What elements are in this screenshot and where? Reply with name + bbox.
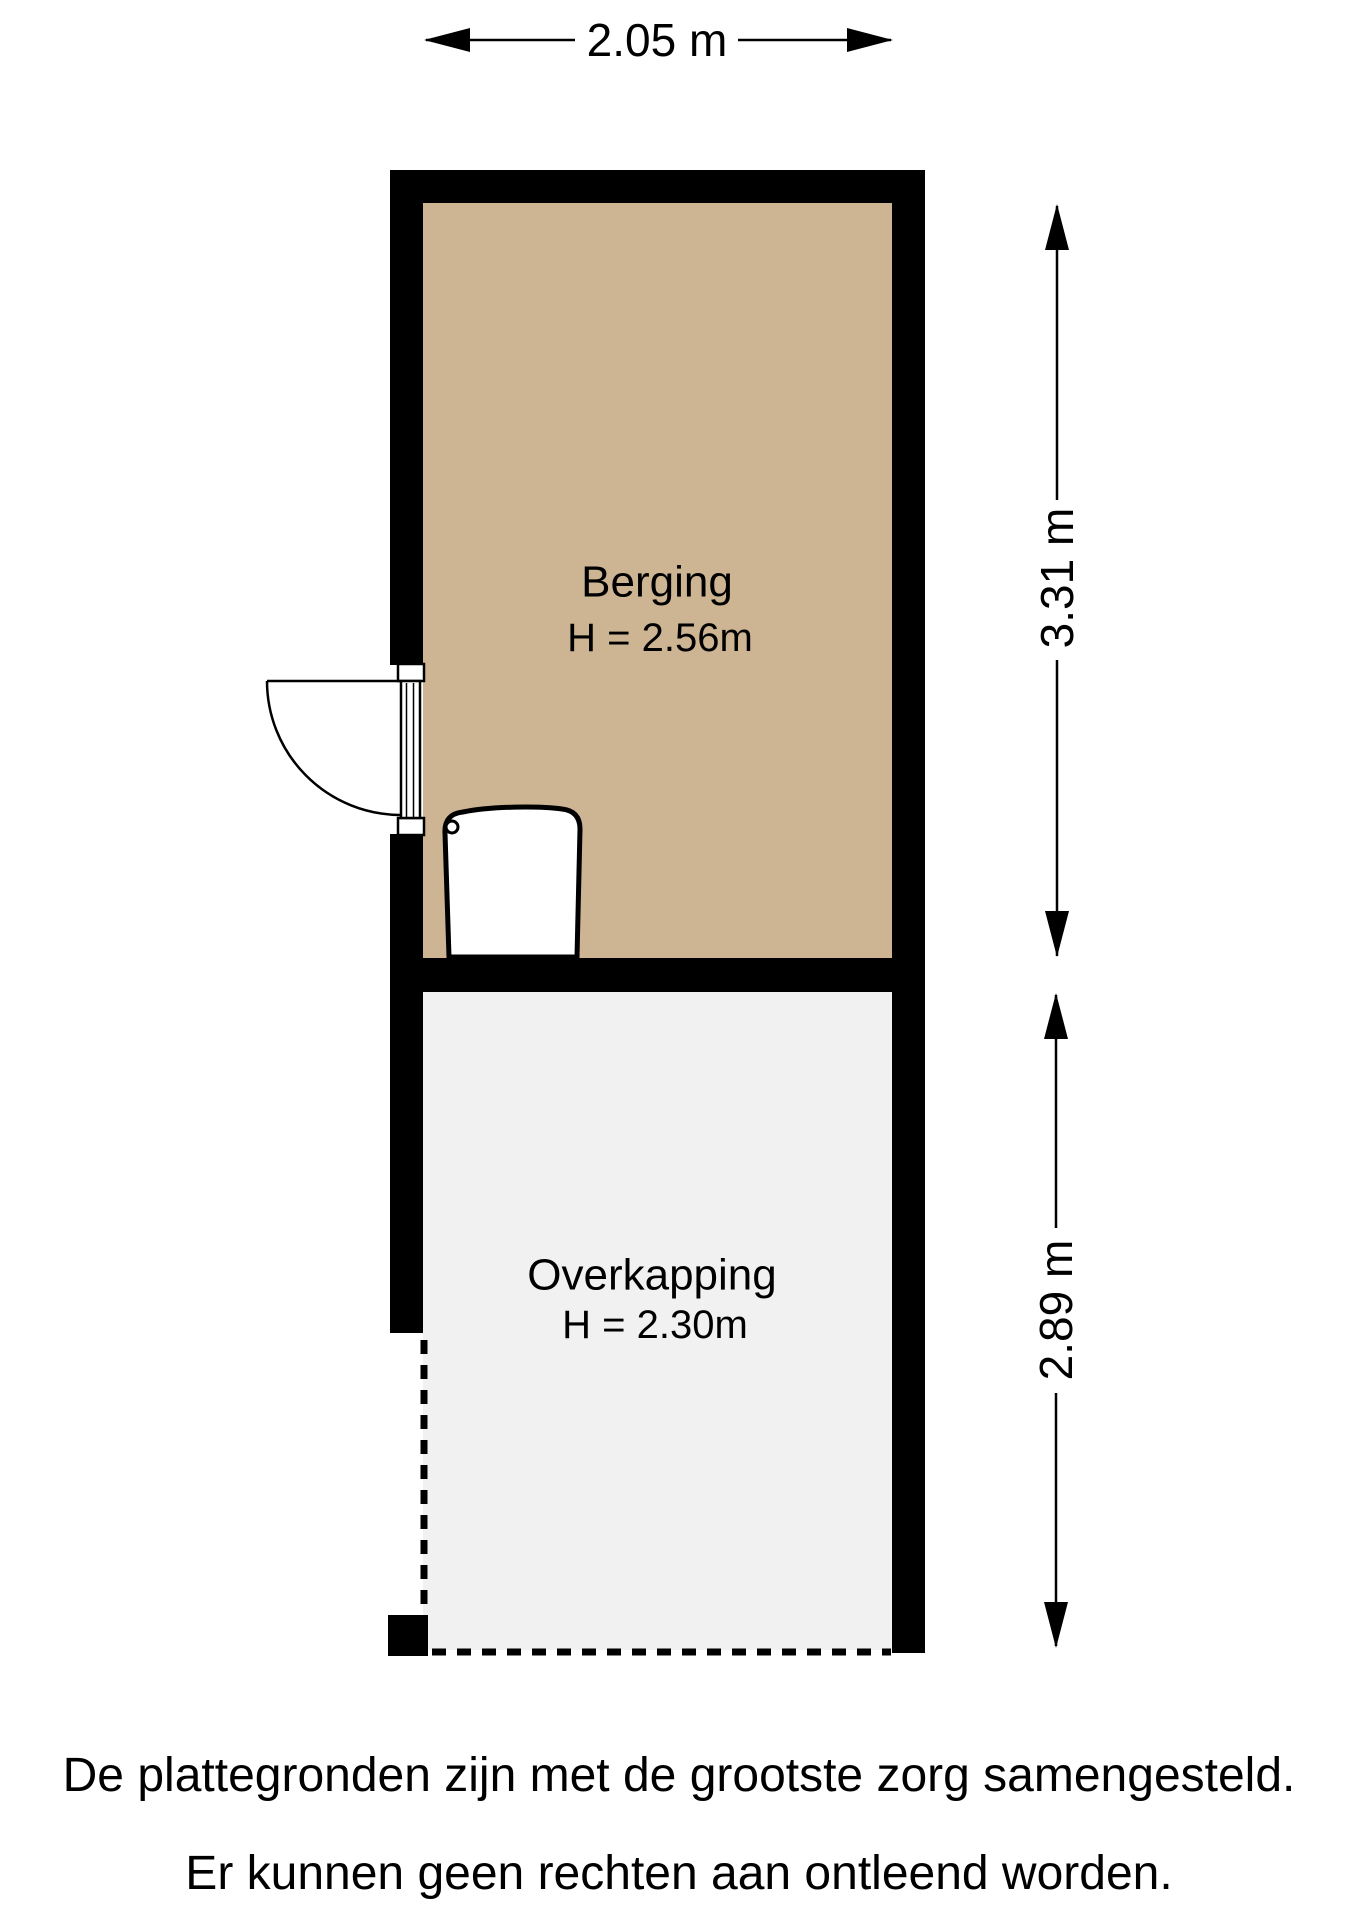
wall-left-lower xyxy=(390,834,423,1333)
door-frame-bottom xyxy=(398,818,424,835)
dimension-overkapping-depth: 2.89 m xyxy=(1030,993,1082,1648)
disclaimer-line-1: De plattegronden zijn met de grootste zo… xyxy=(0,1752,1358,1800)
boiler xyxy=(445,807,580,957)
berging-height-label: H = 2.56m xyxy=(567,616,753,660)
wall-right xyxy=(892,203,925,1653)
dimension-overkapping-depth-label: 2.89 m xyxy=(1030,1240,1082,1381)
arrowhead-down xyxy=(1045,911,1069,957)
door-leaf xyxy=(401,681,420,818)
wall-top xyxy=(390,170,925,203)
door-swing-arc xyxy=(267,681,400,815)
arrowhead-left xyxy=(424,28,470,52)
overkapping-room-label: Overkapping xyxy=(527,1251,776,1300)
dimension-berging-depth-label: 3.31 m xyxy=(1031,508,1083,649)
corner-post xyxy=(388,1615,428,1656)
arrowhead-down xyxy=(1044,1602,1068,1648)
disclaimer-line-2: Er kunnen geen rechten aan ontleend word… xyxy=(0,1850,1358,1898)
wall-divider xyxy=(390,958,925,992)
overkapping-height-label: H = 2.30m xyxy=(562,1303,748,1347)
dimension-width-label: 2.05 m xyxy=(587,14,728,66)
door-frame-top xyxy=(398,664,424,681)
boiler-body xyxy=(445,807,580,957)
wall-left-upper xyxy=(390,203,423,665)
floorplan-page: 2.05 m 3.31 m 2.89 m Berging H = 2.56m O… xyxy=(0,0,1358,1920)
dimension-berging-depth: 3.31 m xyxy=(1031,204,1083,957)
berging-room-label: Berging xyxy=(581,558,733,607)
dimension-width: 2.05 m xyxy=(424,14,893,66)
arrowhead-right xyxy=(847,28,893,52)
floorplan-drawing: 2.05 m 3.31 m 2.89 m Berging H = 2.56m O… xyxy=(0,0,1358,1920)
boiler-valve xyxy=(446,821,458,833)
door xyxy=(267,664,424,835)
